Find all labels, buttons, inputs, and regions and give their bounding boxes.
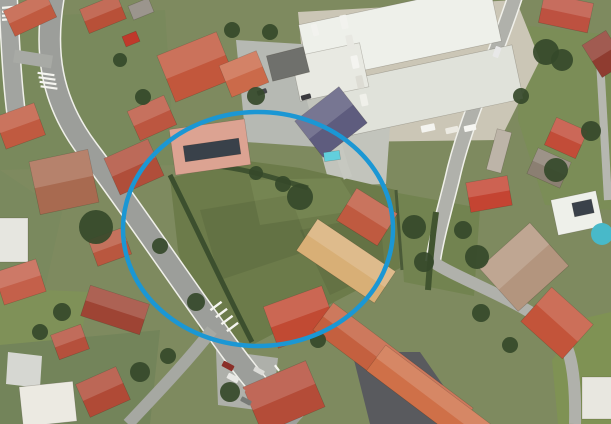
tree	[472, 304, 490, 322]
building-white	[0, 218, 28, 262]
tree	[551, 49, 573, 71]
building-white	[19, 381, 77, 424]
building-white	[582, 377, 611, 419]
tree	[502, 337, 518, 353]
tree	[130, 362, 150, 382]
tree	[454, 221, 472, 239]
tree	[79, 210, 113, 244]
aerial-scene-svg	[0, 0, 611, 424]
tree	[544, 158, 568, 182]
tree	[465, 245, 489, 269]
tree	[160, 348, 176, 364]
road-branch-topleft	[14, 56, 52, 62]
bush-in-lawn	[275, 176, 291, 192]
tree	[224, 22, 240, 38]
tree	[262, 24, 278, 40]
swimming-pool-small	[323, 150, 340, 161]
tree	[113, 53, 127, 67]
tree	[53, 303, 71, 321]
tree	[581, 121, 601, 141]
tree	[402, 215, 426, 239]
tree	[220, 382, 240, 402]
tree	[247, 87, 265, 105]
paved-court-pad	[6, 352, 42, 388]
tree	[32, 324, 48, 340]
satellite-photo	[0, 0, 611, 424]
tree	[249, 166, 263, 180]
tree	[513, 88, 529, 104]
tree	[152, 238, 168, 254]
tree	[414, 252, 434, 272]
tree	[187, 293, 205, 311]
tree	[135, 89, 151, 105]
bush-in-lawn	[287, 184, 313, 210]
